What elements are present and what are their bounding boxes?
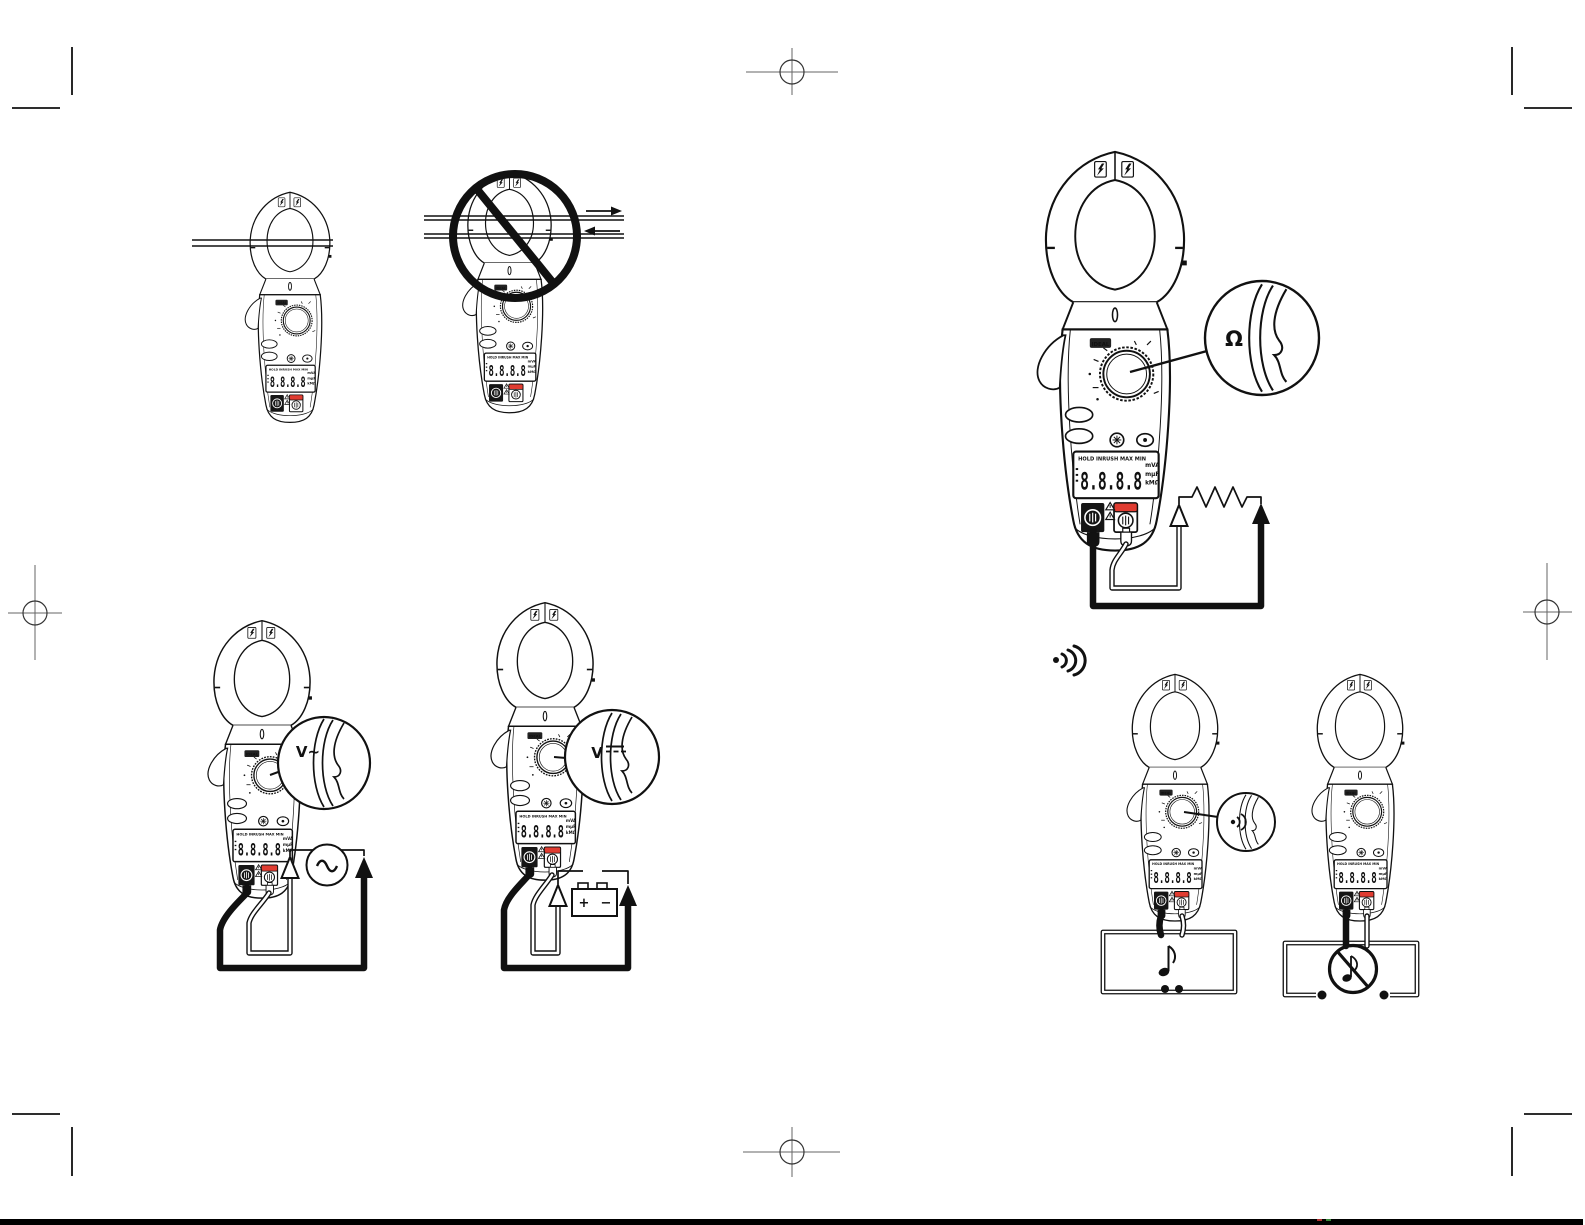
- white-test-lead: [533, 875, 558, 953]
- polarity-arrow-outline: [550, 885, 567, 906]
- figure-continuity-no-beep: [1285, 674, 1417, 999]
- battery-plus-label: +: [579, 896, 590, 911]
- color-registration-dot: [1326, 1219, 1331, 1221]
- dial-zoom-bubble-ac-voltage: V~: [278, 717, 370, 809]
- figure-continuity-beep: [1053, 646, 1275, 993]
- contact-dot: [1380, 991, 1389, 1000]
- sound-waves-icon: [1053, 646, 1085, 675]
- music-note-icon: [1157, 946, 1175, 978]
- registration-target-icon: [8, 565, 62, 660]
- contact-dot: [1161, 985, 1169, 993]
- figure-clamp-single-wire: [192, 192, 333, 422]
- clamp-meter-illustration: [1312, 674, 1404, 921]
- black-test-lead: [1160, 916, 1162, 935]
- polarity-arrow-filled: [1252, 503, 1270, 524]
- crop-mark-icon: [12, 47, 1572, 1176]
- figure-resistance-measurement: Ω: [1037, 152, 1319, 606]
- contact-dot: [1175, 985, 1183, 993]
- dial-zoom-bubble-dc-voltage: V: [565, 710, 659, 804]
- battery-icon: + −: [558, 871, 628, 916]
- bottom-bar: [0, 1219, 1583, 1225]
- battery-minus-label: −: [601, 896, 612, 911]
- figure-clamp-two-wires-prohibited: [424, 172, 624, 412]
- music-note-crossed-icon: [1330, 946, 1377, 993]
- registration-target-icon: [743, 1127, 840, 1177]
- clamp-meter-illustration: [1037, 152, 1186, 551]
- clamp-meter-illustration: [245, 192, 331, 422]
- dial-zoom-bubble-continuity: [1217, 793, 1275, 851]
- current-arrow-right-icon: [586, 207, 622, 216]
- manual-page-diagram: IDEAL: [0, 0, 1585, 1225]
- registration-target-icon: [1523, 563, 1572, 660]
- continuity-circuit-open: [1285, 943, 1417, 1000]
- callout-label-dc-voltage: V: [591, 744, 603, 762]
- continuity-circuit-closed: [1103, 932, 1235, 993]
- polarity-arrow-outline: [1171, 505, 1188, 526]
- callout-label-ac-voltage: V~: [296, 743, 320, 761]
- clamp-meter-illustration: [1127, 674, 1219, 921]
- callout-label-resistance: Ω: [1225, 327, 1243, 351]
- polarity-arrow-filled: [355, 857, 373, 878]
- contact-dot: [1318, 991, 1327, 1000]
- figure-dc-voltage-measurement: V + −: [491, 603, 659, 968]
- polarity-arrow-filled: [619, 885, 637, 906]
- dial-zoom-bubble-resistance: Ω: [1205, 281, 1319, 395]
- color-registration-dot: [1317, 1219, 1322, 1221]
- resistor-icon: [1179, 487, 1261, 507]
- manual-page: IDEAL: [0, 0, 1585, 1225]
- figure-ac-voltage-measurement: V~: [208, 621, 373, 968]
- registration-target-icon: [746, 48, 838, 95]
- ac-source-icon: [290, 845, 364, 886]
